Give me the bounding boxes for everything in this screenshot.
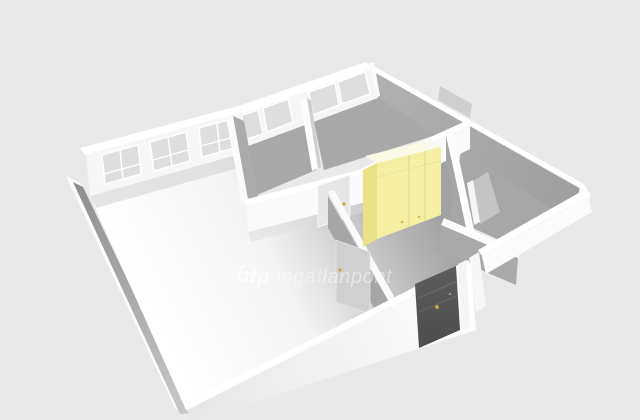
wardrobe-side <box>363 163 377 247</box>
wardrobe-handle-1 <box>401 221 403 223</box>
entrance-door-peephole <box>449 293 451 295</box>
entrance-door-handle <box>435 305 439 309</box>
interior-door-2-handle <box>338 268 341 271</box>
interior-door-2 <box>336 240 370 314</box>
interior-door-1-handle <box>342 202 345 205</box>
wardrobe-handle-2 <box>418 216 420 218</box>
floorplan-3d-model <box>0 0 640 420</box>
floorplan-viewport[interactable]: otp ingatlanpont <box>0 0 640 420</box>
